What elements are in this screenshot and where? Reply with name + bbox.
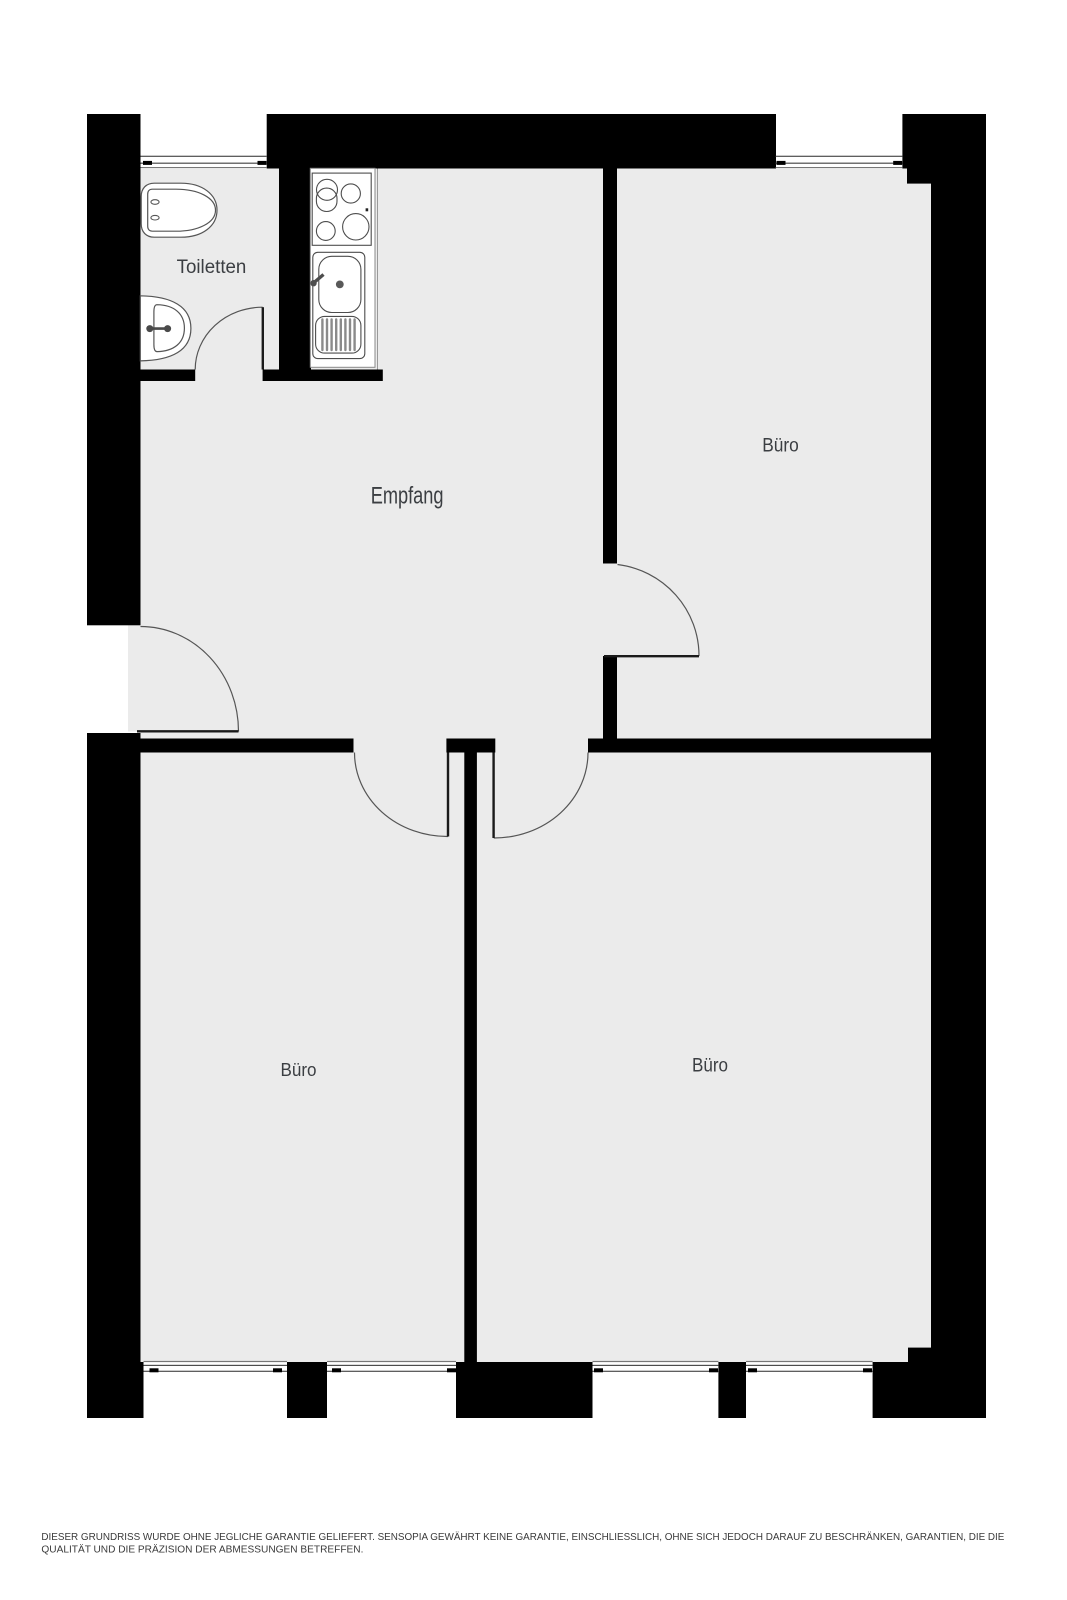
svg-text:Empfang: Empfang bbox=[371, 484, 444, 510]
svg-text:Toiletten: Toiletten bbox=[177, 257, 247, 278]
svg-text:QUALITÄT UND DIE PRÄZISION DER: QUALITÄT UND DIE PRÄZISION DER ABMESSUNG… bbox=[41, 1544, 363, 1555]
svg-text:Büro: Büro bbox=[762, 436, 799, 457]
svg-text:Büro: Büro bbox=[692, 1056, 728, 1077]
svg-text:Büro: Büro bbox=[281, 1059, 317, 1080]
svg-text:DIESER GRUNDRISS WURDE OHNE JE: DIESER GRUNDRISS WURDE OHNE JEGLICHE GAR… bbox=[41, 1532, 1005, 1543]
